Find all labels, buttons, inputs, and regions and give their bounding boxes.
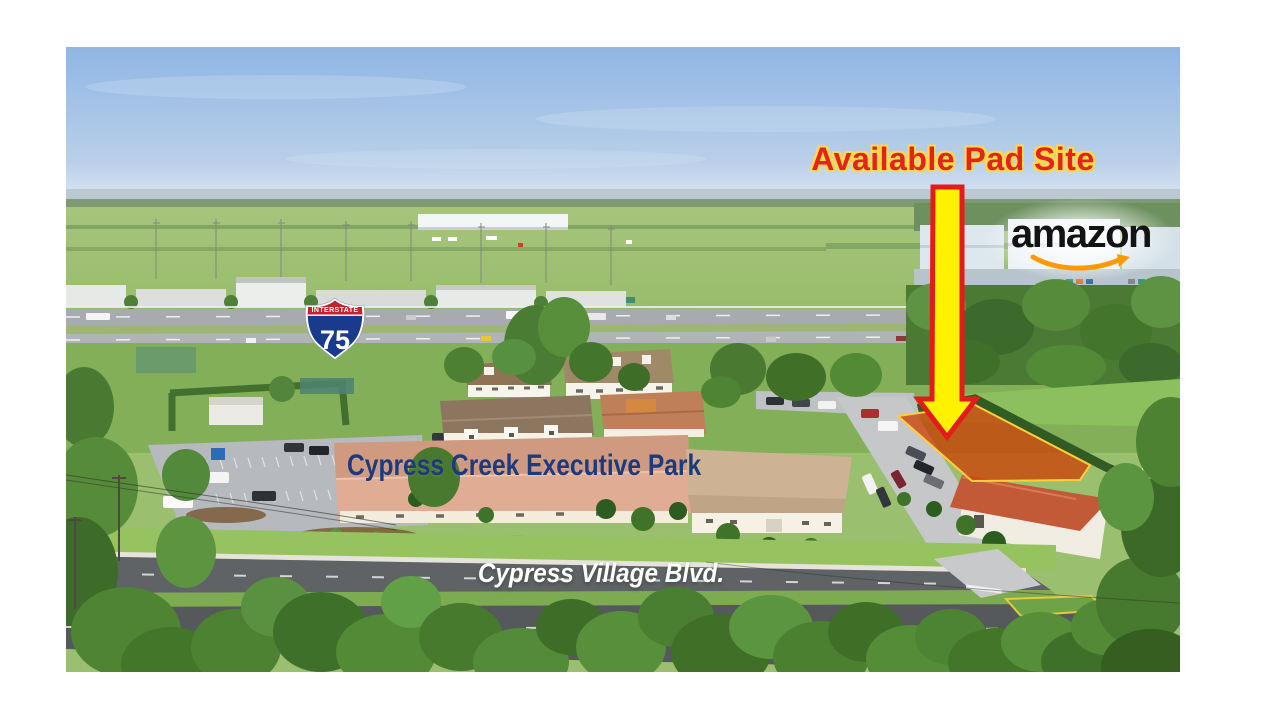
park-name-label: Cypress Creek Executive Park xyxy=(347,449,675,483)
aerial-photo: INTERSTATE 75 Available Pad Site Cypress… xyxy=(66,47,1180,672)
street-name-label: Cypress Village Blvd. xyxy=(421,558,781,589)
available-pad-site-label: Available Pad Site xyxy=(753,141,1153,178)
office-building-6 xyxy=(686,449,852,533)
interstate-shield-header: INTERSTATE xyxy=(312,307,359,314)
amazon-logo: amazon xyxy=(999,208,1163,274)
interstate-shield-number: 75 xyxy=(320,325,350,355)
office-building-3 xyxy=(440,395,594,445)
dumpster xyxy=(211,448,225,460)
office-building-4 xyxy=(600,391,706,437)
amazon-smile-icon xyxy=(1029,252,1133,274)
amazon-wordmark: amazon xyxy=(999,214,1163,254)
